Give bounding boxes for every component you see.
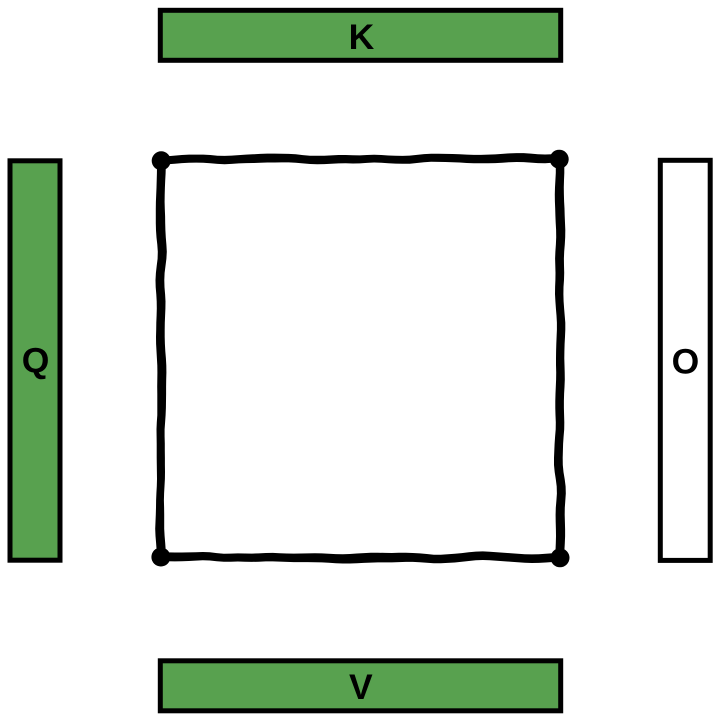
svg-text:K: K [349,17,375,57]
svg-text:V: V [349,667,373,707]
svg-text:O: O [672,341,700,381]
svg-text:Q: Q [22,340,50,380]
